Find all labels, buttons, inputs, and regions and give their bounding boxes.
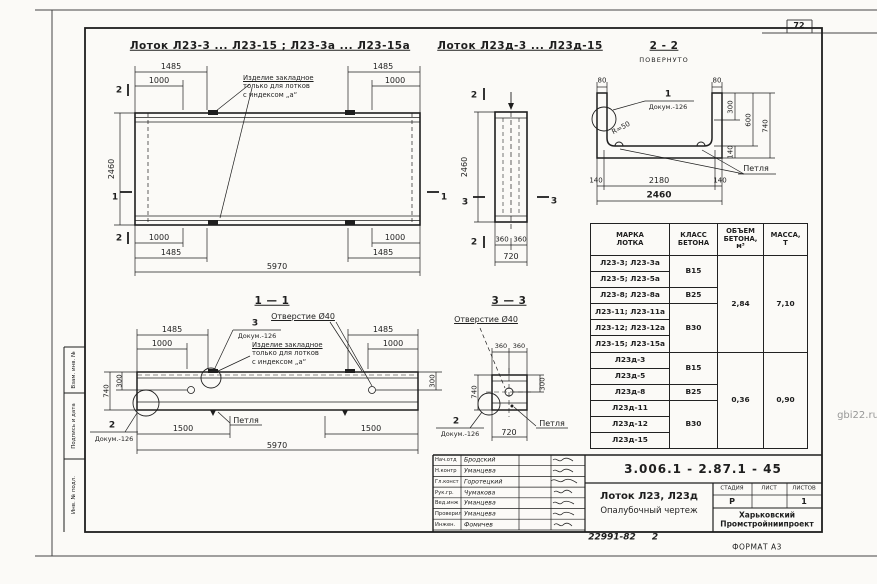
col-mass: МАССА, Т: [764, 224, 808, 256]
dim-label: 1485: [373, 249, 393, 257]
sig-role: Инжен.: [435, 522, 455, 528]
stage-value: Р: [729, 498, 735, 506]
dim-label: 5970: [267, 263, 287, 271]
dim-label: 1485: [161, 249, 181, 257]
sheets-value: 1: [801, 498, 807, 506]
loop-label: Петля: [743, 165, 769, 173]
sig-role: Рук.гр.: [435, 490, 454, 496]
sheets-header: ЛИСТОВ: [792, 486, 816, 492]
dim-label: 1485: [373, 326, 393, 334]
sig-role: Вед.инж: [435, 500, 458, 506]
loop-label: Петля: [539, 420, 565, 428]
dim-label: 300: [540, 377, 547, 390]
radius-label: R=50: [610, 120, 631, 136]
callout-3: 3: [252, 320, 258, 329]
table-row: Л23-3; Л23-3аВ152,847,10: [591, 256, 808, 272]
dim-label: 720: [501, 429, 516, 437]
dim-label: 1000: [149, 234, 169, 242]
dim-label: 300: [117, 374, 124, 387]
col-volume: ОБЪЕМ БЕТОНА, м³: [718, 224, 764, 256]
footer-sheet-number: 2: [652, 534, 658, 543]
concrete-table: МАРКА ЛОТКА КЛАСС БЕТОНА ОБЪЕМ БЕТОНА, м…: [590, 223, 808, 449]
sig-name: Уманцева: [464, 468, 496, 475]
title-section-2-2: 2 - 2: [650, 41, 679, 52]
dim-label: 140: [728, 145, 735, 158]
dim-label: 140: [589, 178, 602, 185]
embed-note: Изделие закладное только для лотков с ин…: [252, 341, 323, 366]
stamp-inv-podl: Инв. № подл.: [71, 476, 77, 514]
title-plan-d: Лоток Л23д-3 ... Л23д-15: [437, 41, 603, 52]
section-mark-2: 2: [116, 235, 122, 244]
stamp-vzam-inv: Взам. инв. №: [71, 351, 77, 388]
callout-2: 2: [109, 422, 115, 431]
callout-doc: Докум.-126: [95, 436, 134, 443]
section-mark-2: 2: [471, 239, 477, 248]
section-mark-2: 2: [471, 92, 477, 101]
format-label: ФОРМАТ А3: [732, 543, 782, 551]
col-mark: МАРКА ЛОТКА: [591, 224, 670, 256]
doc-number: 3.006.1 - 2.87.1 - 45: [624, 463, 782, 475]
dim-label: 740: [472, 385, 479, 398]
stage-header: СТАДИЯ: [720, 486, 743, 492]
dim-label: 80: [598, 78, 607, 85]
callout-doc: Докум.-126: [649, 104, 688, 111]
sheet-header: ЛИСТ: [761, 486, 776, 492]
embed-note: Изделие закладное только для лотков с ин…: [243, 74, 314, 99]
signature-squiggles: [551, 458, 577, 526]
section-mark-3: 3: [551, 198, 557, 207]
sig-name: Чумакова: [464, 489, 495, 496]
sig-role: Проверил: [435, 511, 462, 517]
title-section-3-3: 3 — 3: [492, 296, 527, 307]
dim-label: 360: [495, 237, 508, 244]
hole-label: Отверстие Ø40: [271, 313, 335, 321]
section-2-2-note: ПОВЕРНУТО: [639, 57, 688, 64]
sig-role: Гл.конст: [435, 479, 459, 485]
sig-role: Нач.отд: [435, 457, 457, 463]
dim-label: 2460: [646, 192, 671, 201]
col-class: КЛАСС БЕТОНА: [670, 224, 718, 256]
dim-label: 1500: [361, 425, 381, 433]
table-header-row: МАРКА ЛОТКА КЛАСС БЕТОНА ОБЪЕМ БЕТОНА, м…: [591, 224, 808, 256]
product-name: Лоток Л23, Л23д: [600, 492, 698, 502]
dim-label: 140: [713, 178, 726, 185]
org-name: Харьковский: [739, 511, 795, 519]
dim-label: 360: [513, 237, 526, 244]
table-row: Л23д-3В150,360,90: [591, 352, 808, 368]
dim-label: 2180: [649, 177, 669, 185]
footer-doc-number: 22991-82: [588, 534, 636, 543]
dim-label: 1485: [162, 326, 182, 334]
callout-doc: Докум.-126: [238, 333, 277, 340]
title-plan-a: Лоток Л23-3 ... Л23-15 ; Л23-3а ... Л23-…: [130, 41, 410, 52]
dim-label: 600: [746, 113, 753, 126]
section-mark-2: 2: [116, 87, 122, 96]
dim-label: 1000: [385, 234, 405, 242]
callout-doc: Докум.-126: [441, 431, 480, 438]
title-section-1-1: 1 — 1: [255, 296, 290, 307]
dim-label: 1000: [149, 77, 169, 85]
dim-label: 360: [513, 343, 525, 350]
sig-name: Фомичев: [464, 521, 493, 528]
hole-label: Отверстие Ø40: [454, 316, 518, 324]
watermark: gbi22.ru: [837, 411, 877, 421]
section-mark-1: 1: [441, 194, 447, 203]
callout-1: 1: [665, 91, 671, 100]
dim-label: 740: [763, 119, 770, 132]
dim-label: 2460: [108, 159, 116, 179]
dim-label: 1485: [161, 63, 181, 71]
sig-name: Уманцева: [464, 500, 496, 507]
dim-label: 740: [104, 384, 111, 397]
dim-label: 300: [728, 100, 735, 113]
dim-label: 1485: [373, 63, 393, 71]
sig-role: Н.контр: [435, 468, 457, 474]
loop-label: Петля: [233, 417, 259, 425]
dim-label: 1000: [385, 77, 405, 85]
callout-2: 2: [453, 418, 459, 427]
dim-label: 1000: [383, 340, 403, 348]
org-name: Промстройниипроект: [720, 520, 813, 528]
scanned-drawing-sheet: 72 gbi22.ru Лоток Л23-3 ... Л23-15 ; Л23…: [0, 0, 877, 584]
sig-name: Уманцева: [464, 510, 496, 517]
dim-label: 1000: [152, 340, 172, 348]
dim-label: 1500: [173, 425, 193, 433]
page-number: 72: [793, 22, 804, 30]
stamp-podpis-data: Подпись и дата: [71, 403, 77, 449]
dim-label: 300: [430, 374, 437, 387]
dim-label: 2460: [461, 157, 469, 177]
dim-label: 360: [495, 343, 507, 350]
section-mark-1: 1: [112, 194, 118, 203]
section-mark-3: 3: [462, 199, 468, 208]
dim-label: 720: [503, 253, 518, 261]
dim-label: 5970: [267, 442, 287, 450]
sig-name: Бродский: [464, 457, 495, 464]
drawing-type: Опалубочный чертеж: [600, 507, 697, 516]
sig-name: Горотецкий: [464, 478, 502, 485]
dim-label: 80: [713, 78, 722, 85]
